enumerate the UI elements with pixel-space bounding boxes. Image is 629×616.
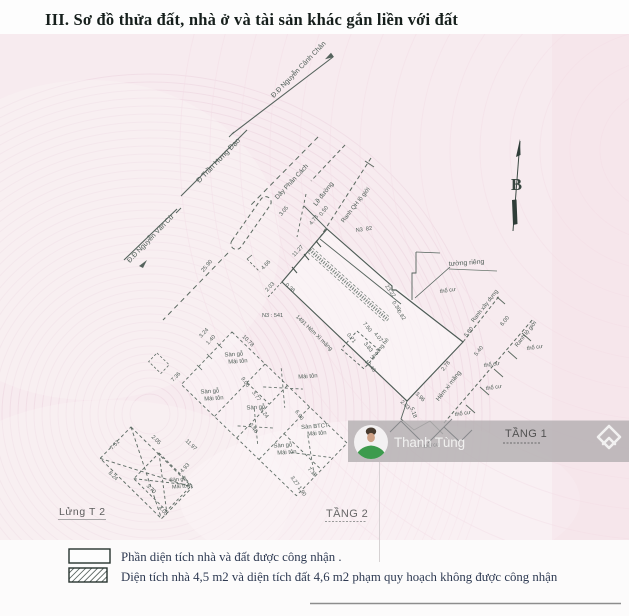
svg-text:Sàn gỗ: Sàn gỗ [169,475,187,483]
svg-text:N3 : 541: N3 : 541 [262,313,283,319]
svg-text:TẦNG 2: TẦNG 2 [326,507,368,520]
svg-text:Thanh Tùng: Thanh Tùng [394,435,465,450]
svg-text:Phần diện tích nhà và đất được: Phần diện tích nhà và đất được công nhận… [121,550,342,564]
svg-text:TẦNG 1: TẦNG 1 [505,427,547,440]
svg-text:Sàn gỗ: Sàn gỗ [224,350,244,358]
svg-text:Diện tích nhà 4,5 m2 và diện t: Diện tích nhà 4,5 m2 và diện tích đất 4,… [121,570,558,584]
svg-text:III. Sơ đồ thửa đất, nhà ở và: III. Sơ đồ thửa đất, nhà ở và tài sản kh… [45,10,458,29]
svg-text:Sàn gỗ: Sàn gỗ [273,441,293,449]
svg-text:Mái tôn: Mái tôn [172,483,190,490]
svg-text:Lửng T 2: Lửng T 2 [59,506,106,518]
svg-text:Sàn gỗ: Sàn gỗ [200,387,220,395]
svg-text:B: B [511,175,522,194]
